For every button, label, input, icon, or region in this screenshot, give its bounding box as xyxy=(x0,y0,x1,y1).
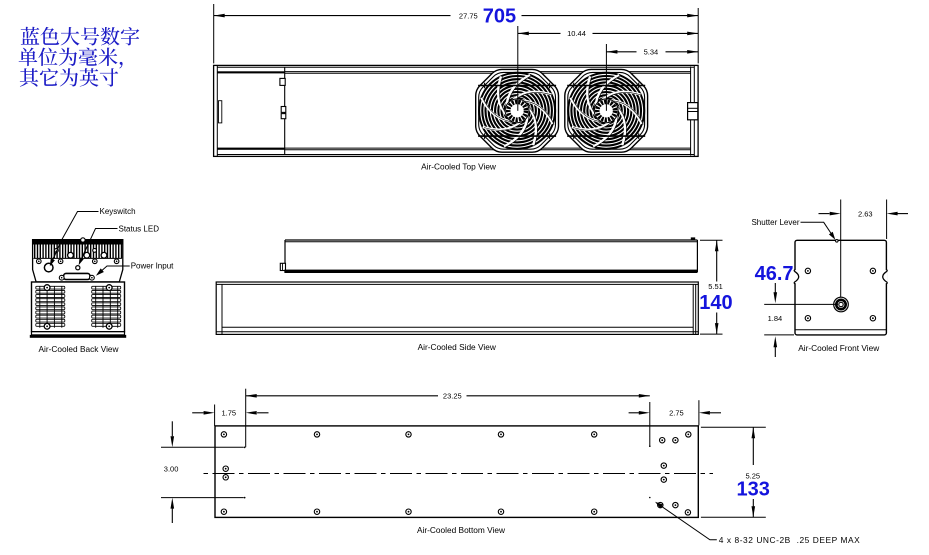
svg-text:Air-Cooled Back View: Air-Cooled Back View xyxy=(38,344,119,354)
svg-text:3.00: 3.00 xyxy=(164,465,179,474)
svg-text:133: 133 xyxy=(737,479,770,501)
svg-text:5.34: 5.34 xyxy=(644,48,659,57)
svg-text:23.25: 23.25 xyxy=(443,392,462,401)
svg-text:705: 705 xyxy=(483,6,516,28)
svg-text:Air-Cooled Top View: Air-Cooled Top View xyxy=(421,162,497,172)
svg-text:4 x 8-32 UNC-2B .25 DEEP MAX: 4 x 8-32 UNC-2B .25 DEEP MAX xyxy=(719,535,860,545)
svg-text:1.84: 1.84 xyxy=(768,314,783,323)
svg-text:2.75: 2.75 xyxy=(669,409,684,418)
svg-text:Air-Cooled Front View: Air-Cooled Front View xyxy=(798,343,880,353)
svg-text:5.51: 5.51 xyxy=(708,282,723,291)
svg-text:Air-Cooled Side View: Air-Cooled Side View xyxy=(418,342,497,352)
svg-text:Status LED: Status LED xyxy=(119,224,160,233)
svg-text:Power Input: Power Input xyxy=(131,262,174,271)
svg-text:27.75: 27.75 xyxy=(459,11,478,20)
svg-text:Keyswitch: Keyswitch xyxy=(100,207,136,216)
svg-text:140: 140 xyxy=(699,292,732,314)
svg-text:1.75: 1.75 xyxy=(221,409,236,418)
svg-text:Air-Cooled Bottom View: Air-Cooled Bottom View xyxy=(417,525,506,535)
svg-text:2.63: 2.63 xyxy=(858,209,873,218)
svg-text:Shutter Lever: Shutter Lever xyxy=(751,218,799,227)
svg-text:10.44: 10.44 xyxy=(567,29,586,38)
svg-text:46.7: 46.7 xyxy=(755,263,794,285)
